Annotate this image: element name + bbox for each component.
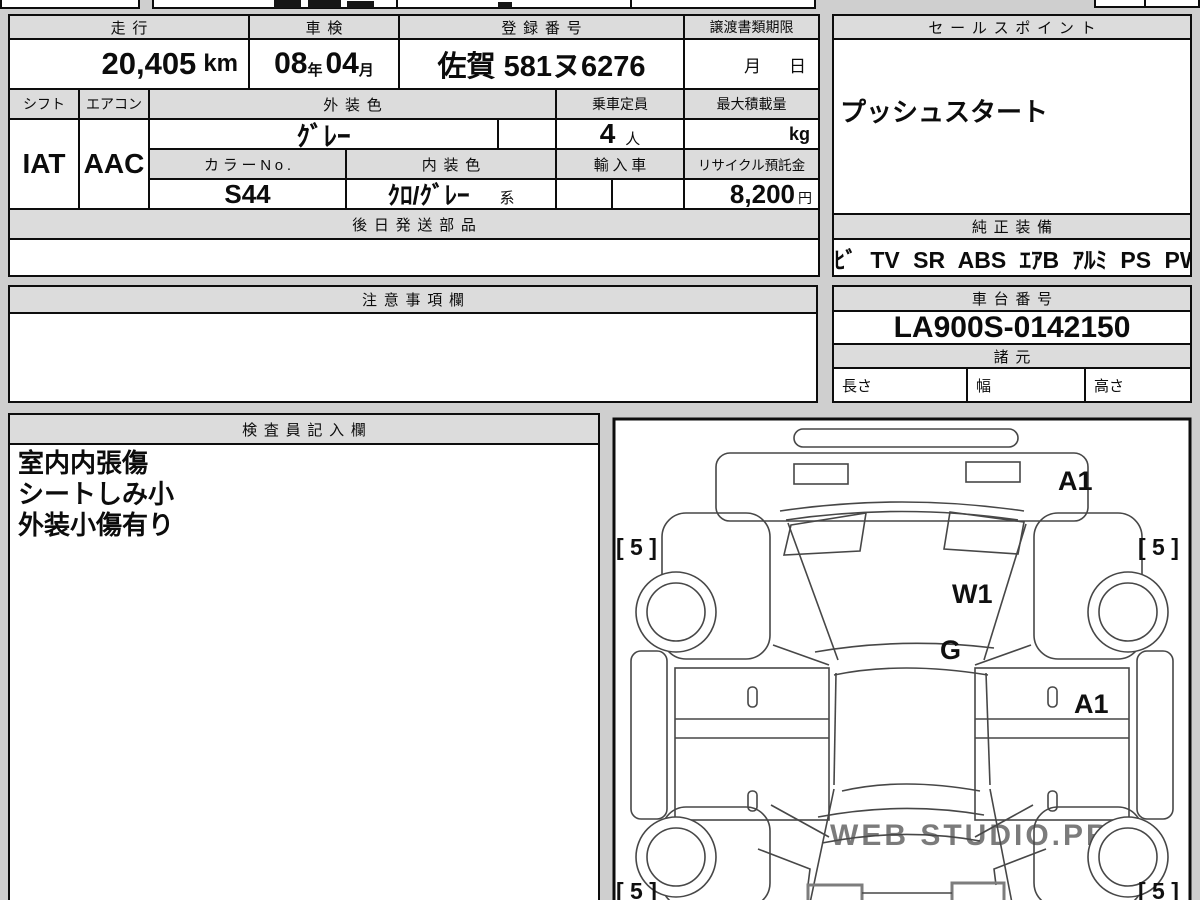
empty-cell xyxy=(611,178,685,210)
import-header: 輸入車 xyxy=(555,148,685,180)
top-partial-cell xyxy=(1094,0,1146,8)
inspection-value: 08 年 04 月 xyxy=(248,38,400,90)
spec-width-cell: 幅 xyxy=(966,367,1086,403)
cutoff-text-fragment xyxy=(308,0,341,8)
capacity-value: 4 人 xyxy=(555,118,685,150)
cutoff-text-fragment xyxy=(498,2,512,8)
empty-cell xyxy=(555,178,613,210)
color-no-value: S44 xyxy=(148,178,347,210)
top-partial-cell xyxy=(396,0,632,9)
later-parts-header: 後日発送部品 xyxy=(8,208,820,240)
wheel-top-left xyxy=(636,572,716,652)
aircon-value: AAC xyxy=(78,118,150,210)
inspector-notes: 室内内張傷 シートしみ小 外装小傷有り xyxy=(10,445,598,544)
chassis-number-header: 車台番号 xyxy=(832,285,1192,312)
interior-color-value: ｸﾛ/ｸﾞﾚｰ 系 xyxy=(345,178,557,210)
inspection-header: 車検 xyxy=(248,14,400,40)
inspector-header: 検査員記入欄 xyxy=(10,415,598,445)
top-partial-cell xyxy=(630,0,816,9)
top-partial-cell xyxy=(0,0,140,9)
exterior-color-header: 外装色 xyxy=(148,88,557,120)
auction-sheet: 走行 車検 登録番号 譲渡書類期限 20,405 km 08 年 04 月 佐賀… xyxy=(0,0,1200,900)
chassis-number-value: LA900S-0142150 xyxy=(832,310,1192,345)
spec-header: 諸元 xyxy=(832,343,1192,369)
cutoff-text-fragment xyxy=(347,1,374,8)
wheel-top-right xyxy=(1088,572,1168,652)
color-no-header: カラーNo. xyxy=(148,148,347,180)
max-load-unit: kg xyxy=(683,118,820,150)
shift-header: シフト xyxy=(8,88,80,120)
exterior-color-value: ｸﾞﾚｰ xyxy=(148,118,499,150)
car-damage-diagram: WEB STUDIO.PRO xyxy=(612,417,1192,900)
glass-damage-mark: W1 xyxy=(952,579,993,609)
tire-depth-bottom-right: [ 5 ] xyxy=(1138,878,1179,900)
inspector-note-line: シートしみ小 xyxy=(18,479,590,510)
notes-header: 注意事項欄 xyxy=(8,285,818,314)
inspector-note-line: 外装小傷有り xyxy=(18,510,590,541)
recycle-deposit-value: 8,200 円 xyxy=(683,178,820,210)
door-damage-mark: A1 xyxy=(1074,689,1109,719)
later-parts-value xyxy=(8,238,820,277)
registration-value: 佐賀 581ヌ6276 xyxy=(398,38,685,90)
roof-damage-mark: G xyxy=(940,635,961,665)
interior-color-header: 内装色 xyxy=(345,148,557,180)
equipment-list: ﾅﾋﾞ TV SR ABS ｴｱB ｱﾙﾐ PS PW xyxy=(832,238,1192,277)
top-partial-cell xyxy=(1144,0,1200,8)
mileage-header: 走行 xyxy=(8,14,250,40)
sales-point-header: セールスポイント xyxy=(832,14,1192,40)
rear-damage-mark: A1 xyxy=(1058,466,1093,496)
mileage-value: 20,405 km xyxy=(8,38,250,90)
sales-point-content: プッシュスタート xyxy=(832,38,1192,215)
max-load-header: 最大積載量 xyxy=(683,88,820,120)
empty-cell xyxy=(497,118,557,150)
shift-value: IAT xyxy=(8,118,80,210)
tire-depth-top-left: [ 5 ] xyxy=(616,534,657,560)
tire-depth-bottom-left: [ 5 ] xyxy=(616,878,657,900)
cutoff-text-fragment xyxy=(274,0,301,8)
registration-header: 登録番号 xyxy=(398,14,685,40)
capacity-header: 乗車定員 xyxy=(555,88,685,120)
aircon-header: エアコン xyxy=(78,88,150,120)
genuine-equipment-header: 純正装備 xyxy=(832,213,1192,240)
spec-height-cell: 高さ xyxy=(1084,367,1192,403)
inspector-box: 検査員記入欄 室内内張傷 シートしみ小 外装小傷有り xyxy=(8,413,600,900)
recycle-deposit-header: リサイクル預託金 xyxy=(683,148,820,180)
transfer-docs-value: 月日 xyxy=(683,38,820,90)
transfer-docs-header: 譲渡書類期限 xyxy=(683,14,820,40)
spec-length-cell: 長さ xyxy=(832,367,968,403)
notes-content xyxy=(8,312,818,403)
inspector-note-line: 室内内張傷 xyxy=(18,448,590,479)
tire-depth-top-right: [ 5 ] xyxy=(1138,534,1179,560)
